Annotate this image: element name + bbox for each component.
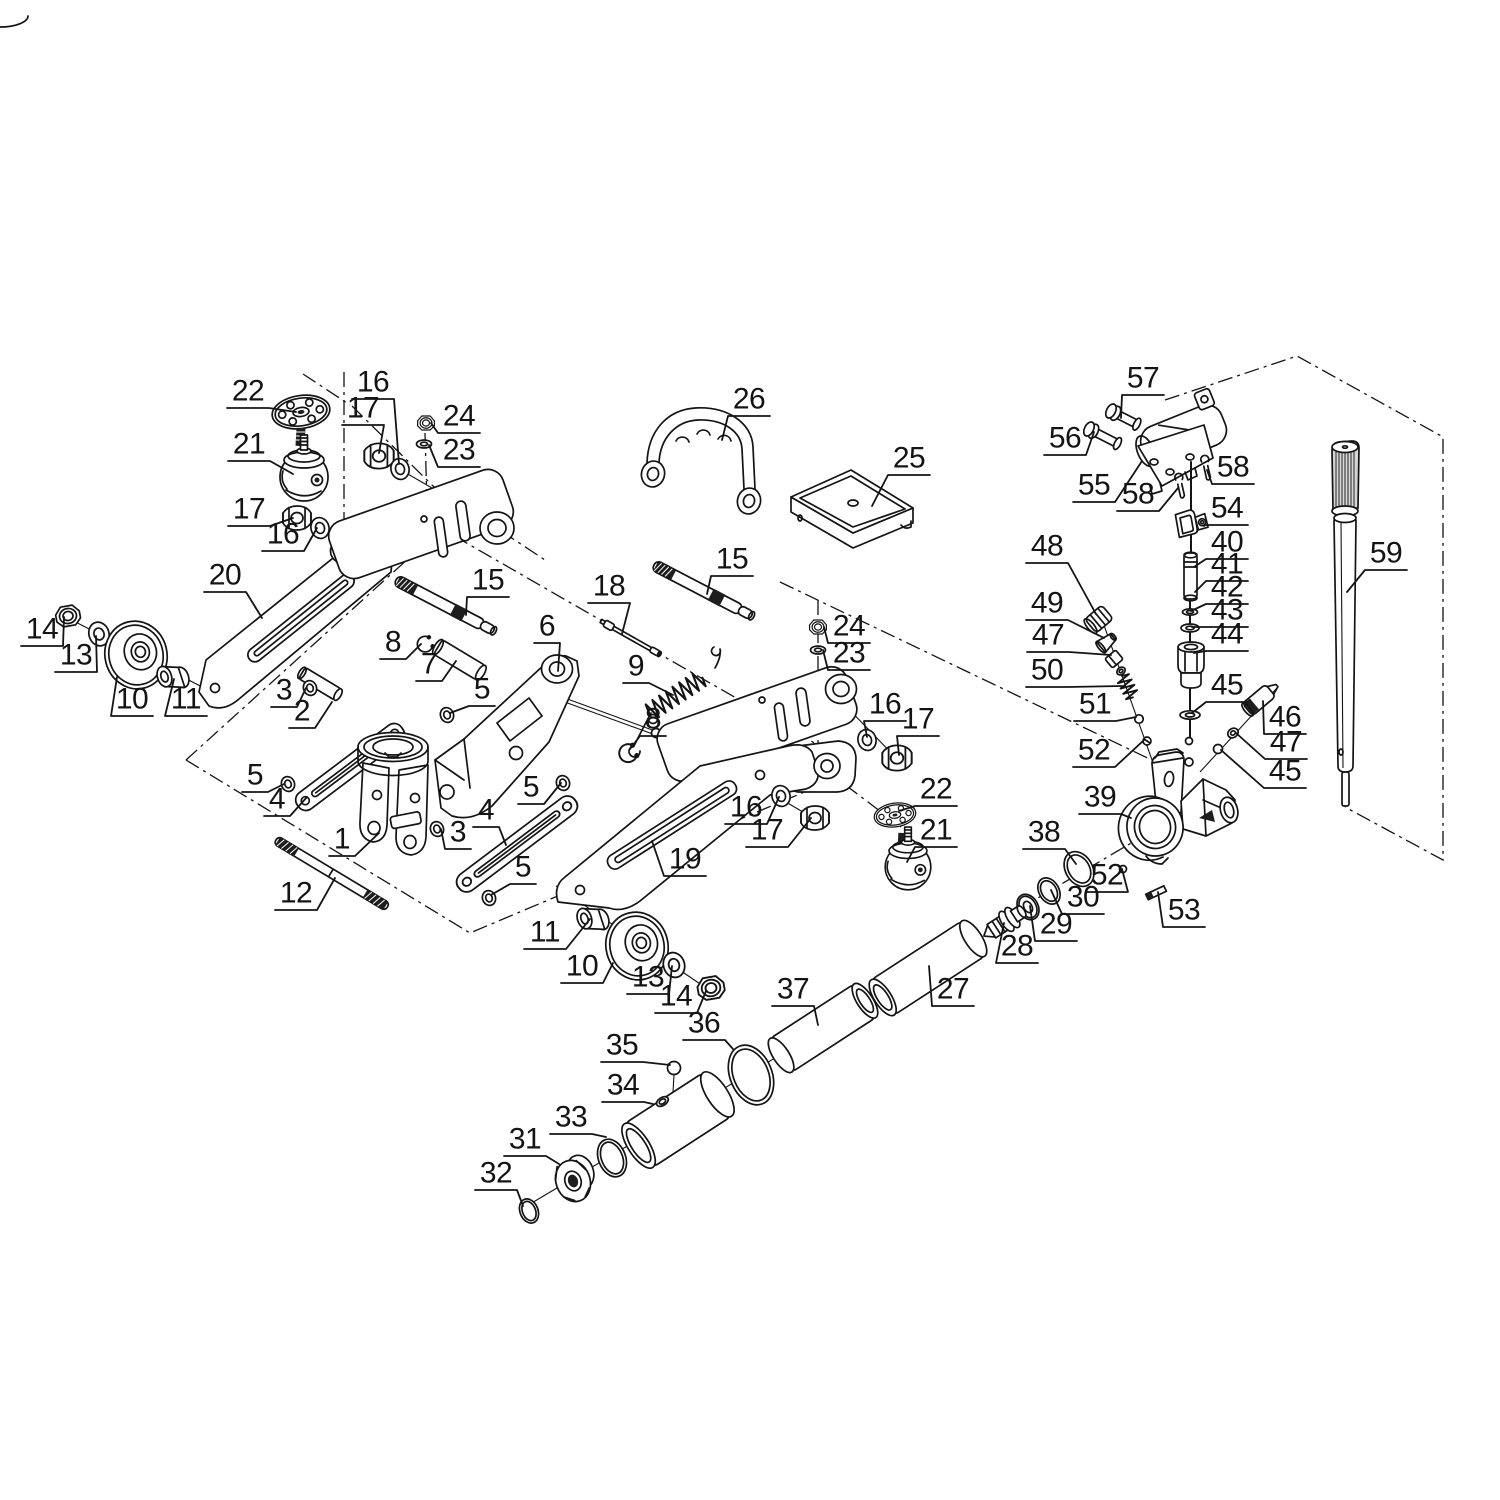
callout-label: 12 [280, 879, 312, 909]
callout-label: 14 [26, 615, 58, 645]
callout-label: 36 [688, 1009, 720, 1039]
callout-label: 35 [606, 1031, 638, 1061]
callout-label: 47 [1032, 621, 1064, 651]
callout-label: 37 [777, 975, 809, 1005]
callout-label: 4 [269, 785, 285, 815]
callout-label: 55 [1078, 471, 1110, 501]
callout-label: 19 [669, 845, 701, 875]
callout-label: 3 [450, 818, 466, 848]
callout-label: 3 [276, 676, 292, 706]
callout-label: 49 [1031, 589, 1063, 619]
callout-label: 16 [267, 520, 299, 550]
callout-label: 22 [920, 775, 952, 805]
callout-label: 14 [660, 982, 692, 1012]
callout-label: 23 [443, 436, 475, 466]
callout-label: 29 [1040, 910, 1072, 940]
callout-label: 48 [1031, 532, 1063, 562]
callout-label: 10 [116, 685, 148, 715]
callout-label: 22 [232, 377, 264, 407]
exploded-parts-diagram: 2221161724231716201518152625687593214131… [0, 0, 1500, 1500]
callout-label: 20 [209, 561, 241, 591]
callout-label: 56 [1049, 424, 1081, 454]
callout-label: 10 [566, 952, 598, 982]
callout-label: 57 [1127, 364, 1159, 394]
callout-label: 15 [716, 545, 748, 575]
callout-label: 11 [530, 918, 560, 948]
callout-label: 58 [1122, 480, 1154, 510]
callout-label: 11 [171, 685, 201, 715]
callout-label: 24 [443, 402, 475, 432]
callout-label: 52 [1078, 736, 1110, 766]
callout-label: 59 [1370, 539, 1402, 569]
callout-label: 8 [385, 628, 401, 658]
callout-label: 26 [733, 385, 765, 415]
callout-label: 1 [334, 825, 350, 855]
callout-label: 15 [472, 566, 504, 596]
callout-label: 25 [893, 444, 925, 474]
callout-label: 21 [233, 430, 265, 460]
callout-label: 38 [1028, 818, 1060, 848]
callout-label: 7 [421, 650, 437, 680]
callout-label: 58 [1217, 453, 1249, 483]
callout-label: 54 [1211, 494, 1243, 524]
callout-label: 8 [645, 705, 661, 735]
callout-label: 5 [515, 853, 531, 883]
callout-label: 23 [833, 639, 865, 669]
callout-label: 28 [1001, 932, 1033, 962]
callout-label: 50 [1031, 656, 1063, 686]
callout-label: 17 [347, 394, 379, 424]
callout-label: 39 [1084, 783, 1116, 813]
callout-label: 27 [937, 975, 969, 1005]
callout-label: 53 [1168, 896, 1200, 926]
callout-label: 5 [474, 675, 490, 705]
callout-label: 17 [233, 495, 265, 525]
callout-label: 45 [1211, 671, 1243, 701]
callout-label: 44 [1211, 620, 1243, 650]
callout-label: 33 [555, 1103, 587, 1133]
callout-label: 17 [902, 705, 934, 735]
callout-label: 34 [607, 1071, 639, 1101]
callout-label: 17 [751, 816, 783, 846]
callout-label: 51 [1079, 690, 1111, 720]
callout-label: 21 [920, 816, 952, 846]
callout-label: 45 [1269, 757, 1301, 787]
callout-label: 18 [593, 572, 625, 602]
callout-layer: 2221161724231716201518152625687593214131… [0, 0, 1500, 1500]
callout-label: 2 [294, 697, 310, 727]
callout-label: 5 [247, 761, 263, 791]
callout-label: 6 [539, 612, 555, 642]
callout-label: 47 [1270, 728, 1302, 758]
callout-label: 16 [869, 690, 901, 720]
callout-label: 32 [480, 1159, 512, 1189]
callout-label: 5 [523, 773, 539, 803]
callout-label: 9 [628, 652, 644, 682]
callout-label: 13 [60, 641, 92, 671]
callout-label: 4 [478, 796, 494, 826]
callout-label: 31 [509, 1125, 541, 1155]
